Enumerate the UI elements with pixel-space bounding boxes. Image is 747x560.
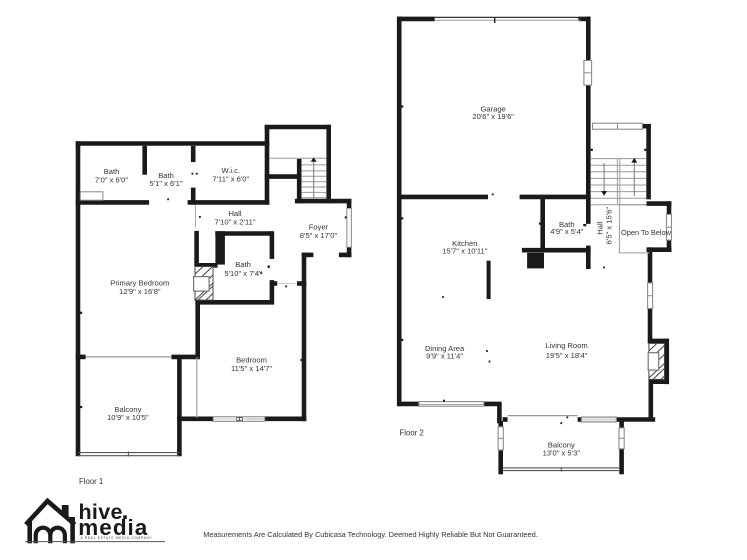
svg-text:Measurements Are Calculated By: Measurements Are Calculated By Cubicasa … bbox=[203, 530, 538, 539]
svg-text:19'5" x 18'4": 19'5" x 18'4" bbox=[546, 351, 588, 360]
svg-text:13'0" x 5'3": 13'0" x 5'3" bbox=[543, 449, 581, 458]
svg-text:9'9" x 11'4": 9'9" x 11'4" bbox=[426, 352, 463, 361]
svg-text:Hall: Hall bbox=[595, 221, 604, 234]
svg-text:7'11" x 6'0": 7'11" x 6'0" bbox=[212, 175, 249, 184]
svg-text:W.i.c.: W.i.c. bbox=[222, 166, 241, 175]
svg-text:20'6" x 19'6": 20'6" x 19'6" bbox=[472, 112, 514, 121]
svg-text:15'7" x 10'11": 15'7" x 10'11" bbox=[442, 247, 488, 256]
svg-text:12'9" x 16'8": 12'9" x 16'8" bbox=[119, 287, 161, 296]
svg-text:Bath: Bath bbox=[235, 260, 251, 269]
svg-text:6'5" x 15'6": 6'5" x 15'6" bbox=[604, 207, 613, 245]
svg-text:Primary Bedroom: Primary Bedroom bbox=[110, 278, 169, 287]
svg-text:7'10" x 2'11": 7'10" x 2'11" bbox=[214, 217, 255, 226]
svg-text:A REAL ESTATE MEDIA COMPANY: A REAL ESTATE MEDIA COMPANY bbox=[81, 536, 153, 540]
svg-text:5'1" x 6'1": 5'1" x 6'1" bbox=[149, 179, 183, 188]
svg-text:10'9" x 10'5": 10'9" x 10'5" bbox=[107, 413, 149, 422]
svg-text:Living Room: Living Room bbox=[545, 341, 587, 350]
svg-text:8'5" x 17'0": 8'5" x 17'0" bbox=[300, 231, 338, 240]
svg-text:11'5" x 14'7": 11'5" x 14'7" bbox=[231, 364, 272, 373]
svg-text:4'9" x 5'4": 4'9" x 5'4" bbox=[550, 227, 584, 236]
svg-text:5'10" x 7'4": 5'10" x 7'4" bbox=[224, 269, 262, 278]
svg-text:Floor 2: Floor 2 bbox=[400, 428, 424, 437]
svg-text:Open To Below: Open To Below bbox=[621, 228, 672, 237]
svg-text:7'0" x 6'0": 7'0" x 6'0" bbox=[95, 175, 129, 184]
svg-text:Floor 1: Floor 1 bbox=[79, 477, 103, 486]
